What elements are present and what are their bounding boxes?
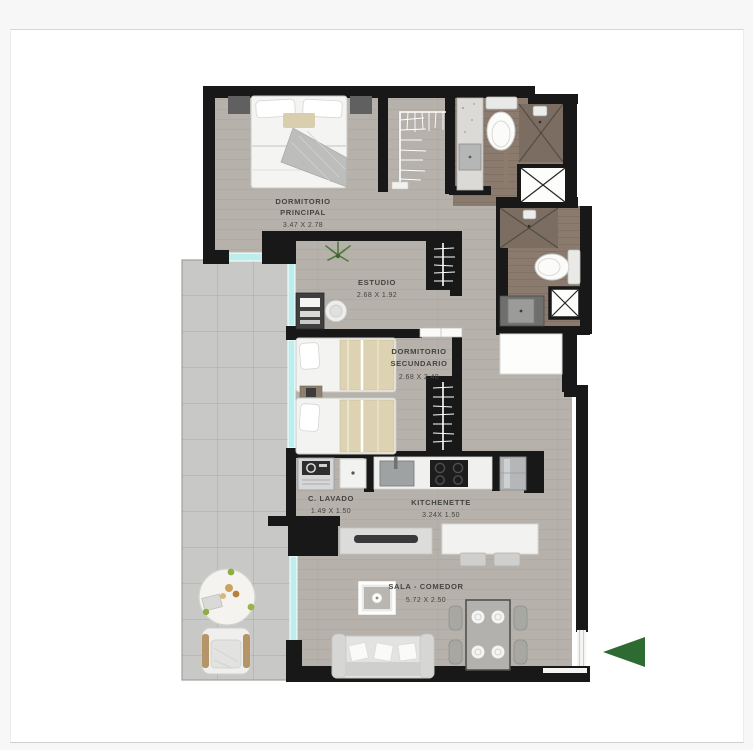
- sofa: [332, 634, 434, 678]
- label-dormitorio-principal: DORMITORIO PRINCIPAL 3.47 X 2.78: [275, 197, 330, 229]
- entrance-arrow: [603, 637, 645, 667]
- kitchen-island: [442, 524, 538, 554]
- terrace-armchair: [202, 628, 250, 674]
- svg-text:DORMITORIO: DORMITORIO: [391, 347, 446, 356]
- label-dormitorio-secundario: DORMITORIO SECUNDARIO 2.68 X 2.40: [390, 347, 447, 381]
- svg-text:C. LAVADO: C. LAVADO: [308, 494, 354, 503]
- svg-text:5.72 X 2.50: 5.72 X 2.50: [406, 597, 446, 604]
- svg-text:ESTUDIO: ESTUDIO: [358, 278, 396, 287]
- shower-2: [500, 208, 558, 248]
- page-background: { "colors": { "pagebg": "#f7f7f7", "wall…: [0, 0, 753, 750]
- desk-chair: [325, 300, 347, 322]
- cooktop: [430, 460, 468, 487]
- shower-1: [519, 104, 563, 162]
- single-bed-1: [296, 338, 396, 392]
- floorplan-svg: DORMITORIO PRINCIPAL 3.47 X 2.78 ESTUDIO…: [0, 0, 753, 750]
- duct-shaft-1: [519, 166, 567, 204]
- svg-text:1.49 X 1.50: 1.49 X 1.50: [311, 508, 351, 515]
- svg-text:SECUNDARIO: SECUNDARIO: [390, 359, 447, 368]
- svg-text:2.68 X 2.40: 2.68 X 2.40: [399, 374, 439, 381]
- fridge: [500, 457, 526, 490]
- single-bed-2: [296, 398, 396, 454]
- svg-text:3.24X 1.50: 3.24X 1.50: [422, 512, 460, 519]
- desk: [296, 293, 324, 329]
- window-right: [577, 630, 586, 666]
- svg-text:SALA - COMEDOR: SALA - COMEDOR: [388, 582, 463, 591]
- svg-text:DORMITORIO: DORMITORIO: [275, 197, 330, 206]
- svg-text:3.47 X 2.78: 3.47 X 2.78: [283, 222, 323, 229]
- dining-table: [466, 600, 510, 670]
- window-bottom: [543, 668, 587, 673]
- nightstand-left: [228, 96, 250, 114]
- tv-console: [340, 528, 432, 554]
- svg-text:2.68 X 1.92: 2.68 X 1.92: [357, 292, 397, 299]
- nightstand-2: [300, 386, 322, 399]
- vanity-1: [457, 98, 483, 190]
- terrace-table: [199, 569, 255, 625]
- storage-counter: [500, 334, 562, 374]
- duct-shaft-2: [550, 288, 580, 318]
- kitchen-sink: [380, 456, 414, 486]
- closet-secundario: [426, 376, 462, 456]
- utility-sink: [340, 459, 366, 488]
- washing-machine: [298, 458, 334, 490]
- tv: [354, 535, 418, 543]
- vanity-2: [500, 296, 544, 326]
- double-bed: [251, 96, 347, 188]
- nightstand-right: [350, 96, 372, 114]
- svg-text:PRINCIPAL: PRINCIPAL: [280, 208, 326, 217]
- sliding-door: [420, 328, 462, 337]
- bath-door: [504, 148, 508, 188]
- estudio-shelf: [426, 238, 462, 290]
- svg-text:KITCHENETTE: KITCHENETTE: [411, 498, 471, 507]
- toilet-1: [486, 97, 517, 150]
